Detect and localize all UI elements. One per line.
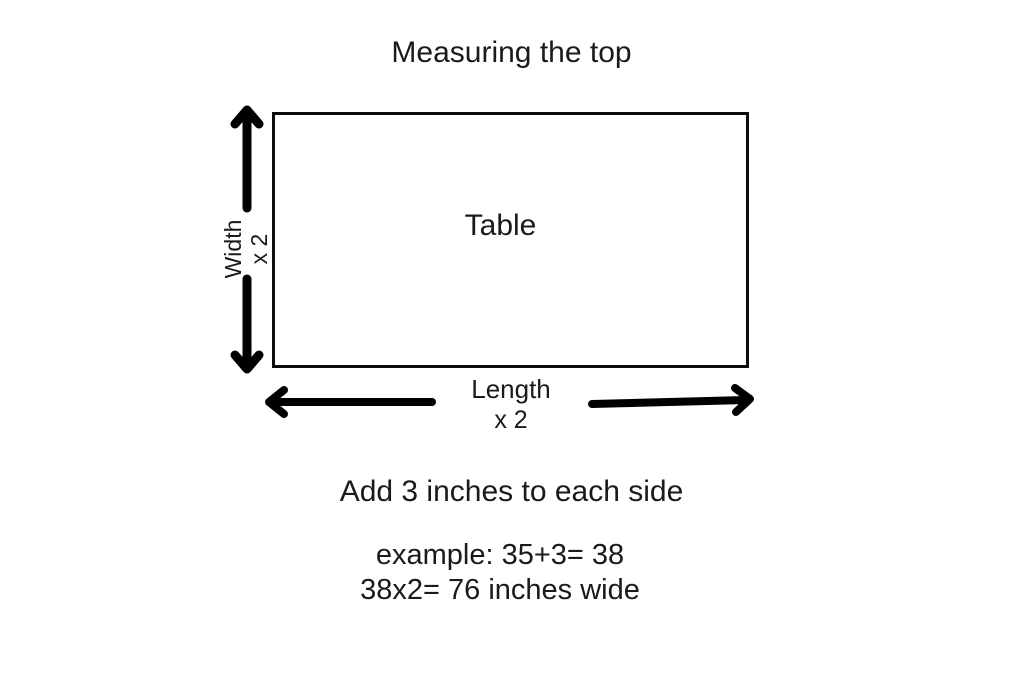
example-line-1: example: 35+3= 38 — [0, 538, 1000, 572]
length-label: Length x 2 — [471, 374, 551, 436]
add-inches-note: Add 3 inches to each side — [0, 474, 1023, 510]
width-label-multiplier: x 2 — [246, 220, 272, 279]
width-label: Width x 2 — [220, 220, 272, 279]
table-label: Table — [272, 206, 729, 246]
width-label-word: Width — [220, 220, 246, 279]
length-label-multiplier: x 2 — [471, 404, 551, 436]
page-title: Measuring the top — [0, 35, 1023, 71]
measuring-diagram: Measuring the top Table Width x 2 Length… — [0, 0, 1023, 682]
example-line-2: 38x2= 76 inches wide — [0, 573, 1000, 607]
length-label-word: Length — [471, 374, 551, 404]
